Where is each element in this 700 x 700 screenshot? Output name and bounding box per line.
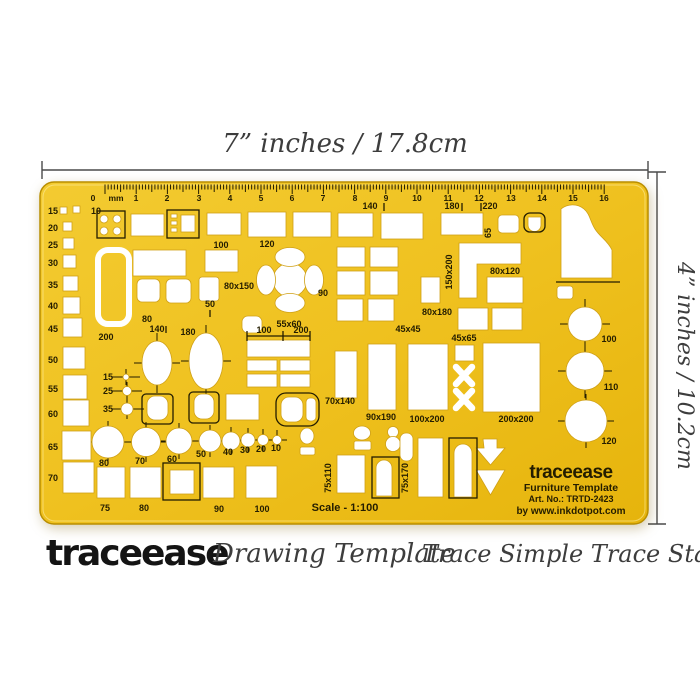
size-label: 6 bbox=[290, 193, 295, 203]
size-label: 30 bbox=[48, 258, 58, 268]
top-dimension bbox=[42, 161, 648, 179]
size-label: 3 bbox=[197, 193, 202, 203]
product-photo: 7” inches / 17.8cm 4” inches / 10.2cm bbox=[0, 0, 700, 700]
size-label: 2 bbox=[165, 193, 170, 203]
size-label: 90x190 bbox=[366, 412, 396, 422]
size-label: 1 bbox=[134, 193, 139, 203]
size-label: 60 bbox=[167, 454, 177, 464]
size-label: 50 bbox=[196, 449, 206, 459]
size-label: 35 bbox=[103, 404, 113, 414]
size-label: 20 bbox=[256, 444, 266, 454]
size-label: 10 bbox=[412, 193, 422, 203]
size-label: 110 bbox=[604, 382, 619, 392]
size-label: 45 bbox=[48, 324, 58, 334]
brand-logo: traceease bbox=[46, 533, 228, 574]
size-label: 80 bbox=[142, 314, 152, 324]
size-label: 140 bbox=[149, 324, 164, 334]
size-label: 220 bbox=[482, 201, 497, 211]
brand-slogan: Trace Simple Trace Stable bbox=[422, 540, 700, 568]
size-label: 8 bbox=[353, 193, 358, 203]
furniture-stencil: 0mm1234567891011121314151615102025303540… bbox=[40, 182, 648, 524]
size-label: 70x140 bbox=[325, 396, 355, 406]
size-label: 25 bbox=[48, 240, 58, 250]
size-label: 180 bbox=[444, 201, 459, 211]
scale-label: Scale - 1:100 bbox=[312, 502, 379, 514]
toilet-cutout bbox=[354, 426, 371, 440]
size-label: 65 bbox=[483, 228, 493, 238]
size-label: 140 bbox=[362, 201, 377, 211]
size-label: 180 bbox=[180, 327, 195, 337]
size-label: 60 bbox=[48, 409, 58, 419]
size-label: 35 bbox=[48, 280, 58, 290]
size-label: 150x200 bbox=[444, 254, 454, 289]
size-label: 100 bbox=[213, 240, 228, 250]
size-label: 5 bbox=[259, 193, 264, 203]
size-label: 45x45 bbox=[395, 324, 420, 334]
size-label: 50 bbox=[205, 299, 215, 309]
size-label: 80x150 bbox=[224, 281, 254, 291]
size-label: 65 bbox=[48, 442, 58, 452]
size-label: 75x110 bbox=[323, 463, 333, 493]
size-label: 100x200 bbox=[409, 414, 444, 424]
size-label: 120 bbox=[259, 239, 274, 249]
size-label: 4 bbox=[228, 193, 233, 203]
size-label: 75 bbox=[100, 503, 110, 513]
size-label: 16 bbox=[599, 193, 609, 203]
oval-table-cutout bbox=[142, 341, 172, 385]
size-label: 0 bbox=[91, 193, 96, 203]
size-label: 25 bbox=[103, 386, 113, 396]
size-label: 9 bbox=[384, 193, 389, 203]
size-label: 20 bbox=[48, 223, 58, 233]
size-label: 15 bbox=[568, 193, 578, 203]
size-label: 30 bbox=[240, 445, 250, 455]
top-dimension-label: 7” inches / 17.8cm bbox=[222, 129, 468, 159]
brand-tagline: Drawing Template bbox=[212, 539, 456, 569]
right-dimension-label: 4” inches / 10.2cm bbox=[672, 261, 697, 470]
size-label: 55 bbox=[48, 384, 58, 394]
size-label: 45x65 bbox=[451, 333, 476, 343]
size-label: 70 bbox=[48, 473, 58, 483]
size-label: 10 bbox=[91, 206, 101, 216]
size-label: 40 bbox=[48, 301, 58, 311]
right-dimension bbox=[648, 172, 666, 524]
stencil-art-no: Art. No.: TRTD-2423 bbox=[528, 494, 613, 504]
stencil-brand-name: traceease bbox=[529, 462, 612, 483]
size-label: 80x180 bbox=[422, 307, 452, 317]
size-label: 90 bbox=[318, 288, 328, 298]
person-cutout bbox=[388, 427, 399, 438]
size-label: 15 bbox=[48, 206, 58, 216]
stencil-product-name: Furniture Template bbox=[524, 482, 618, 494]
door-cutout bbox=[376, 460, 392, 496]
size-label: 200 bbox=[293, 325, 308, 335]
size-label: 100 bbox=[254, 504, 269, 514]
size-label: 100 bbox=[256, 325, 271, 335]
round-table-cutout bbox=[273, 263, 307, 297]
size-label: 100 bbox=[601, 334, 616, 344]
size-label: 120 bbox=[601, 436, 616, 446]
footer-caption: traceease Drawing Template Trace Simple … bbox=[46, 533, 700, 574]
size-label: 200x200 bbox=[498, 414, 533, 424]
oval-table-cutout bbox=[189, 333, 223, 389]
size-label: 10 bbox=[271, 443, 281, 453]
chair-cutout bbox=[528, 217, 541, 232]
size-label: 50 bbox=[48, 355, 58, 365]
size-label: 70 bbox=[135, 456, 145, 466]
size-label: 14 bbox=[537, 193, 547, 203]
size-label: 75x170 bbox=[400, 463, 410, 493]
stencil-branding: traceease Furniture Template Art. No.: T… bbox=[516, 462, 625, 517]
size-label: 15 bbox=[103, 372, 113, 382]
size-label: 80x120 bbox=[490, 266, 520, 276]
scene: 7” inches / 17.8cm 4” inches / 10.2cm bbox=[0, 0, 700, 700]
size-label: 7 bbox=[321, 193, 326, 203]
door-cutout bbox=[454, 444, 472, 497]
size-label: 80 bbox=[99, 458, 109, 468]
size-label: 90 bbox=[214, 504, 224, 514]
size-label: 200 bbox=[98, 332, 113, 342]
size-label: 40 bbox=[223, 447, 233, 457]
size-label: 80 bbox=[139, 503, 149, 513]
size-label: mm bbox=[108, 193, 124, 203]
size-label: 13 bbox=[506, 193, 516, 203]
stencil-website: by www.inkdotpot.com bbox=[516, 506, 625, 517]
